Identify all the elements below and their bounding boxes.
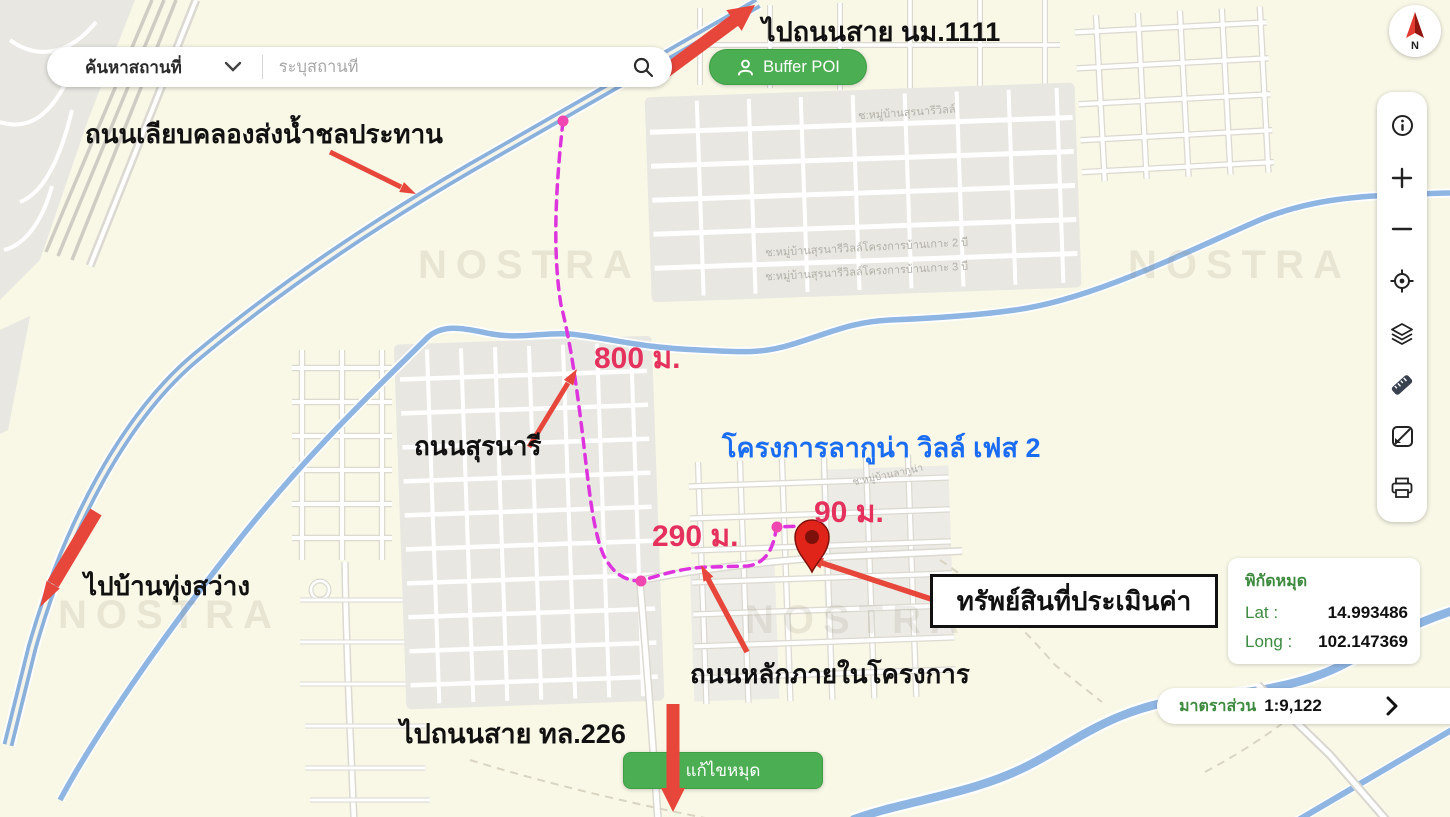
- search-divider: [262, 55, 263, 79]
- annotation-project-name: โครงการลากูน่า วิลล์ เฟส 2: [722, 432, 1041, 466]
- zoom-in-icon[interactable]: [1384, 160, 1420, 196]
- basemap-icon[interactable]: [1384, 418, 1420, 454]
- search-input[interactable]: [277, 57, 624, 78]
- chevron-right-icon[interactable]: [1385, 696, 1399, 716]
- subdivision-center-left: [394, 336, 665, 710]
- chevron-down-icon[interactable]: [224, 61, 242, 73]
- nostra-watermark: NOSTRA: [418, 243, 641, 288]
- annotation-canal-road: ถนนเลียบคลองส่งน้ำชลประทาน: [85, 118, 443, 151]
- annotation-to-nm1111: ไปถนนสาย นม.1111: [762, 16, 1000, 50]
- scale-label: มาตราส่วน: [1179, 694, 1256, 719]
- coordinates-title: พิกัดหมุด: [1245, 569, 1408, 594]
- measure-icon[interactable]: [1384, 367, 1420, 403]
- annotation-suranari-road: ถนนสุรนารี: [414, 430, 541, 463]
- property-callout-label: ทรัพย์สินที่ประเมินค่า: [957, 581, 1191, 622]
- map-toolbar: [1377, 92, 1427, 522]
- longitude-label: Long :: [1245, 632, 1292, 652]
- distance-800m: 800 ม.: [594, 340, 681, 378]
- person-pin-icon: [736, 58, 755, 77]
- route-waypoint-turn: [772, 522, 783, 533]
- edit-pin-label: แก้ไขหมุด: [686, 757, 761, 784]
- search-icon[interactable]: [632, 56, 654, 78]
- pin-coordinates-panel: พิกัดหมุด Lat : 14.993486 Long : 102.147…: [1228, 558, 1420, 664]
- latitude-row: Lat : 14.993486: [1245, 603, 1408, 623]
- compass-north-label: N: [1411, 40, 1419, 52]
- annotation-internal-road: ถนนหลักภายในโครงการ: [690, 658, 970, 691]
- compass-control[interactable]: N: [1389, 5, 1441, 57]
- zoom-out-icon[interactable]: [1384, 211, 1420, 247]
- locate-icon[interactable]: [1384, 263, 1420, 299]
- buffer-poi-button[interactable]: Buffer POI: [709, 49, 867, 85]
- annotation-to-road-226: ไปถนนสาย ทล.226: [400, 718, 626, 752]
- scale-bar[interactable]: มาตราส่วน 1:9,122: [1157, 688, 1450, 724]
- route-waypoint-junction: [636, 576, 647, 587]
- property-callout-box: ทรัพย์สินที่ประเมินค่า: [930, 574, 1218, 628]
- distance-90m: 90 ม.: [814, 494, 884, 532]
- annotation-thung-sawang: ไปบ้านทุ่งสว่าง: [84, 570, 250, 603]
- map-application-window: NOSTRA NOSTRA NOSTRA NOSTRA ช:หมู่บ้านสุ…: [0, 0, 1450, 817]
- layers-icon[interactable]: [1384, 315, 1420, 351]
- route-waypoint-start: [558, 116, 569, 127]
- nostra-watermark: NOSTRA: [1128, 243, 1351, 288]
- print-icon[interactable]: [1384, 470, 1420, 506]
- buffer-poi-label: Buffer POI: [763, 58, 840, 77]
- edit-pin-button[interactable]: แก้ไขหมุด: [623, 752, 823, 789]
- info-icon[interactable]: [1384, 108, 1420, 144]
- distance-290m: 290 ม.: [652, 518, 739, 556]
- compass-needle-icon: [1406, 12, 1424, 38]
- longitude-row: Long : 102.147369: [1245, 632, 1408, 652]
- search-category-selector[interactable]: ค้นหาสถานที่: [85, 54, 182, 81]
- latitude-value: 14.993486: [1328, 603, 1408, 623]
- search-bar: ค้นหาสถานที่: [47, 47, 672, 87]
- longitude-value: 102.147369: [1318, 632, 1408, 652]
- scale-value: 1:9,122: [1264, 696, 1322, 716]
- latitude-label: Lat :: [1245, 603, 1278, 623]
